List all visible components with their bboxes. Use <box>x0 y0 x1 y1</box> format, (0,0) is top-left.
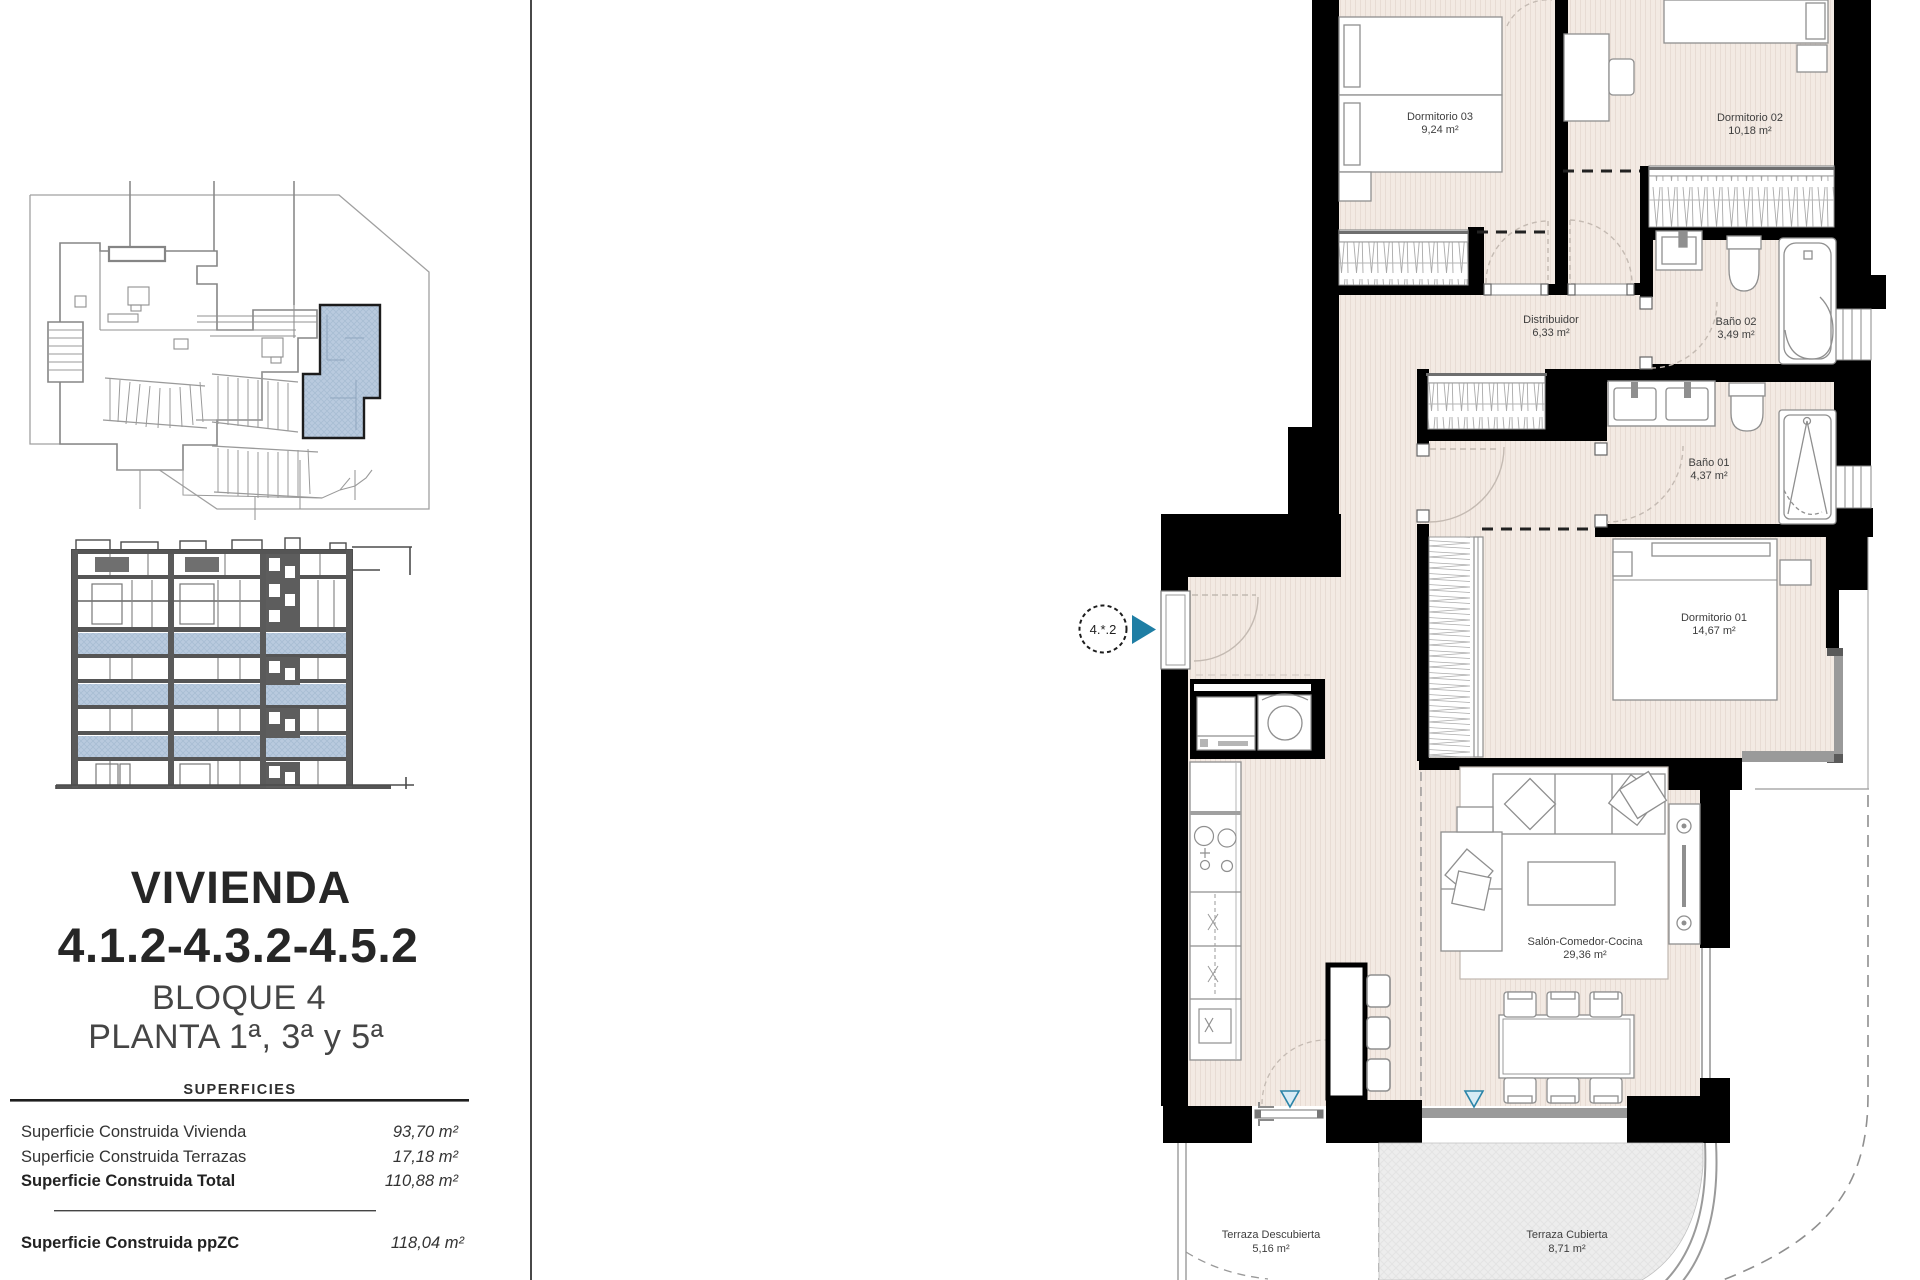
svg-text:110,88 m²: 110,88 m² <box>385 1172 459 1190</box>
svg-text:Terraza Descubierta: Terraza Descubierta <box>1222 1229 1321 1241</box>
svg-text:9,24 m²: 9,24 m² <box>1421 124 1459 136</box>
svg-text:Baño 01: Baño 01 <box>1689 457 1730 469</box>
svg-text:3,49 m²: 3,49 m² <box>1717 329 1755 341</box>
svg-text:5,16 m²: 5,16 m² <box>1252 1243 1290 1255</box>
svg-text:Superficie Construida Total: Superficie Construida Total <box>21 1172 235 1190</box>
svg-text:93,70 m²: 93,70 m² <box>393 1123 459 1141</box>
svg-text:VIVIENDA: VIVIENDA <box>131 862 352 913</box>
svg-text:6,33 m²: 6,33 m² <box>1532 327 1570 339</box>
svg-text:Terraza Cubierta: Terraza Cubierta <box>1526 1229 1608 1241</box>
svg-text:8,71 m²: 8,71 m² <box>1548 1243 1586 1255</box>
svg-text:4.*.2: 4.*.2 <box>1090 622 1117 637</box>
svg-text:4,37 m²: 4,37 m² <box>1690 470 1728 482</box>
svg-text:Distribuidor: Distribuidor <box>1523 314 1579 326</box>
svg-text:Superficie Construida Terrazas: Superficie Construida Terrazas <box>21 1148 246 1166</box>
svg-text:14,67 m²: 14,67 m² <box>1692 625 1736 637</box>
svg-text:Dormitorio 01: Dormitorio 01 <box>1681 612 1747 624</box>
svg-text:BLOQUE 4: BLOQUE 4 <box>152 979 326 1017</box>
svg-text:Dormitorio 03: Dormitorio 03 <box>1407 111 1473 123</box>
svg-text:PLANTA 1ª, 3ª y 5ª: PLANTA 1ª, 3ª y 5ª <box>88 1018 384 1056</box>
svg-text:118,04 m²: 118,04 m² <box>391 1234 465 1252</box>
svg-text:4.1.2-4.3.2-4.5.2: 4.1.2-4.3.2-4.5.2 <box>58 920 419 973</box>
svg-text:Superficie Construida Vivienda: Superficie Construida Vivienda <box>21 1123 247 1141</box>
svg-text:Baño 02: Baño 02 <box>1716 316 1757 328</box>
svg-text:29,36 m²: 29,36 m² <box>1563 949 1607 961</box>
svg-text:SUPERFICIES: SUPERFICIES <box>183 1082 296 1098</box>
svg-text:17,18 m²: 17,18 m² <box>393 1148 459 1166</box>
svg-text:Superficie Construida ppZC: Superficie Construida ppZC <box>21 1234 239 1252</box>
svg-text:Dormitorio 02: Dormitorio 02 <box>1717 112 1783 124</box>
svg-text:Salón-Comedor-Cocina: Salón-Comedor-Cocina <box>1528 936 1644 948</box>
svg-text:10,18 m²: 10,18 m² <box>1728 125 1772 137</box>
